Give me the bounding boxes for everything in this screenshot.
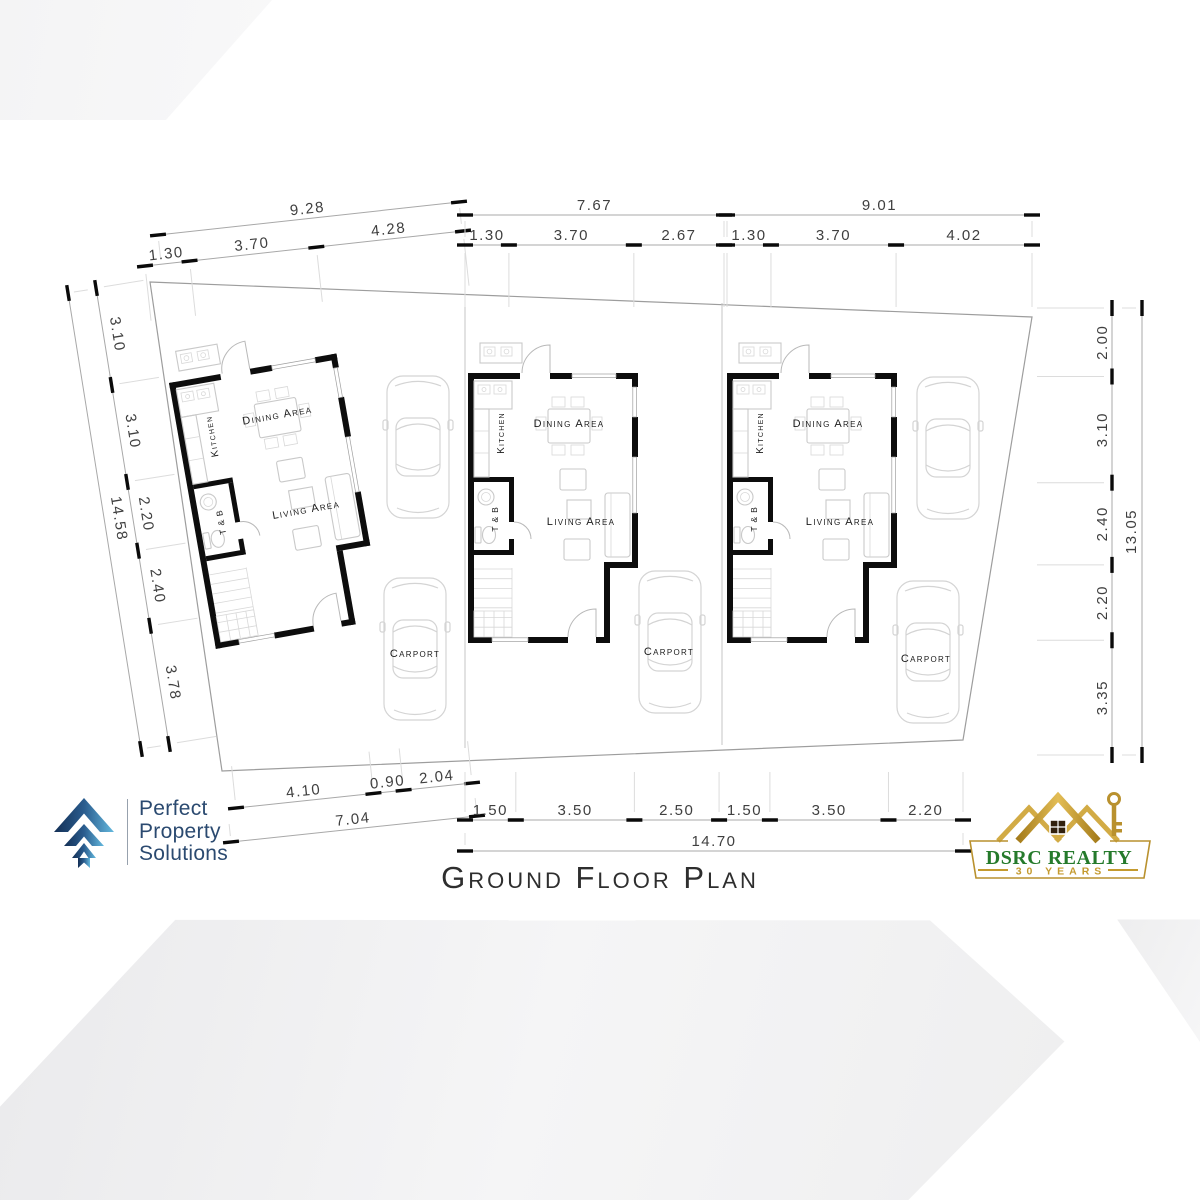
dimension-label: 2.20 <box>908 802 943 819</box>
dimension-label: 4.10 <box>285 781 322 802</box>
dimension-label: 1.30 <box>731 227 766 244</box>
pps-line-2: Property <box>139 821 228 844</box>
dimension-label: 2.20 <box>135 495 157 532</box>
dimension-label: 14.58 <box>107 495 131 542</box>
carport-label-2: Carport <box>644 646 694 658</box>
pps-line-1: Perfect <box>139 798 228 821</box>
dimension-label: 3.10 <box>121 413 143 450</box>
dsrc-roof-key-icon: DSRC REALTY 30 YEARS <box>962 786 1157 892</box>
room-label-living: Living Area <box>271 498 340 522</box>
dsrc-logo: DSRC REALTY 30 YEARS <box>962 786 1157 897</box>
dimension-label: 9.28 <box>289 199 326 220</box>
dsrc-tagline: 30 YEARS <box>1016 866 1107 878</box>
pps-logo-divider <box>127 799 128 865</box>
dimension-label: 13.05 <box>1123 509 1140 554</box>
dimension-label: 1.30 <box>148 244 185 265</box>
dimension-label: 2.40 <box>1094 506 1111 541</box>
dimension-label: 7.67 <box>577 197 612 214</box>
room-label-dining: Dining Area <box>241 404 313 428</box>
room-label-dining: Dining Area <box>534 418 605 430</box>
car-icon <box>893 581 963 723</box>
room-label-toilet: T & B <box>749 506 759 531</box>
window-icon <box>1050 820 1066 834</box>
unit-3: Kitchen Dining Area Living Area T & B <box>727 343 897 643</box>
room-label-kitchen: Kitchen <box>755 412 766 454</box>
dimension-label: 2.67 <box>661 227 696 244</box>
dimension-label: 3.10 <box>106 316 128 353</box>
carport-label-1: Carport <box>390 648 440 660</box>
dimension-label: 3.78 <box>162 664 184 701</box>
dimension-label: 3.10 <box>1094 412 1111 447</box>
car-icon <box>635 571 705 713</box>
dimension-label: 2.20 <box>1094 585 1111 620</box>
pps-logo-text: Perfect Property Solutions <box>139 798 228 866</box>
dimension-label: 3.35 <box>1094 680 1111 715</box>
dimension-label: 3.50 <box>812 802 847 819</box>
dimension-label: 3.70 <box>554 227 589 244</box>
dimension-label: 3.70 <box>233 234 270 255</box>
floor-plan-canvas: Kitchen Dining Area Living Area T & B Ki… <box>0 0 1200 1200</box>
dimension-label: 4.28 <box>370 219 407 240</box>
floor-plan-drawing: Kitchen Dining Area Living Area T & B Ki… <box>0 0 1200 1200</box>
dimension-label: 7.04 <box>335 809 372 830</box>
dimension-label: 2.00 <box>1094 325 1111 360</box>
dimension-label: 1.30 <box>469 227 504 244</box>
dimension-label: 1.50 <box>727 802 762 819</box>
dimension-label: 2.50 <box>659 802 694 819</box>
room-label-toilet: T & B <box>490 506 500 531</box>
room-label-kitchen: Kitchen <box>496 412 507 454</box>
car-icon <box>383 376 453 518</box>
dimension-label: 1.50 <box>473 802 508 819</box>
dimension-label: 14.70 <box>691 833 736 850</box>
dimension-label: 3.50 <box>558 802 593 819</box>
dimension-label: 4.02 <box>946 227 981 244</box>
dimension-label: 2.40 <box>146 567 168 604</box>
dimension-label: 9.01 <box>862 197 897 214</box>
dimension-label: 2.04 <box>418 767 455 788</box>
pps-line-3: Solutions <box>139 843 228 866</box>
room-label-dining: Dining Area <box>793 418 864 430</box>
dimension-label: 3.70 <box>816 227 851 244</box>
pps-house-arrow-icon <box>52 796 116 868</box>
unit-2: Kitchen Dining Area Living Area T & B <box>468 343 638 643</box>
pps-logo: Perfect Property Solutions <box>52 796 228 868</box>
room-label-kitchen: Kitchen <box>203 415 221 458</box>
room-label-living: Living Area <box>806 516 874 528</box>
car-icon <box>913 377 983 519</box>
room-label-living: Living Area <box>547 516 615 528</box>
room-label-toilet: T & B <box>214 509 228 535</box>
carport-label-3: Carport <box>901 653 951 665</box>
